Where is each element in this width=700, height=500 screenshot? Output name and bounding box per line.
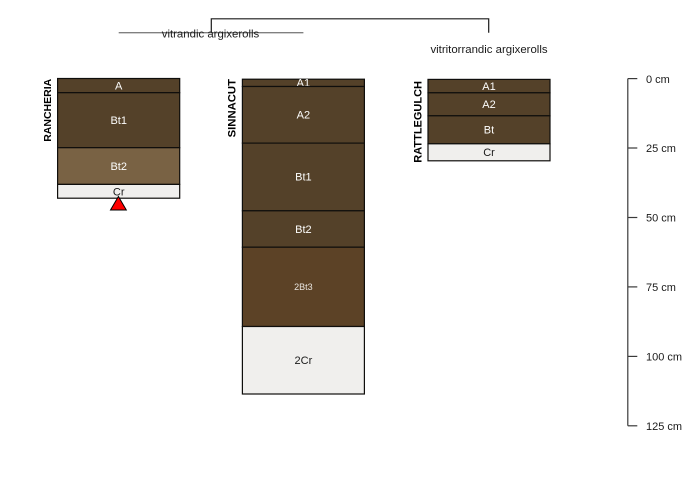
svg-text:75 cm: 75 cm — [646, 282, 676, 294]
svg-text:Bt1: Bt1 — [295, 172, 312, 184]
svg-text:25 cm: 25 cm — [646, 143, 676, 155]
svg-text:Bt1: Bt1 — [110, 115, 127, 127]
svg-text:SINNACUT: SINNACUT — [227, 79, 239, 137]
svg-text:RATTLEGULCH: RATTLEGULCH — [413, 81, 425, 163]
svg-text:vitritorrandic argixerolls: vitritorrandic argixerolls — [430, 44, 547, 56]
svg-text:2Bt3: 2Bt3 — [294, 282, 313, 292]
svg-text:Bt: Bt — [484, 125, 494, 137]
svg-text:2Cr: 2Cr — [295, 355, 313, 367]
svg-text:A1: A1 — [482, 81, 495, 93]
svg-text:0 cm: 0 cm — [646, 74, 670, 86]
svg-text:Cr: Cr — [483, 147, 495, 159]
svg-text:A2: A2 — [482, 99, 495, 111]
svg-text:Bt2: Bt2 — [110, 161, 127, 173]
svg-text:Bt2: Bt2 — [295, 224, 312, 236]
svg-text:A: A — [115, 81, 123, 93]
svg-text:50 cm: 50 cm — [646, 213, 676, 225]
svg-text:RANCHERIA: RANCHERIA — [42, 78, 54, 141]
svg-text:125 cm: 125 cm — [646, 421, 682, 433]
svg-text:A2: A2 — [297, 110, 310, 122]
svg-text:vitrandic argixerolls: vitrandic argixerolls — [162, 29, 260, 41]
svg-text:100 cm: 100 cm — [646, 352, 682, 364]
